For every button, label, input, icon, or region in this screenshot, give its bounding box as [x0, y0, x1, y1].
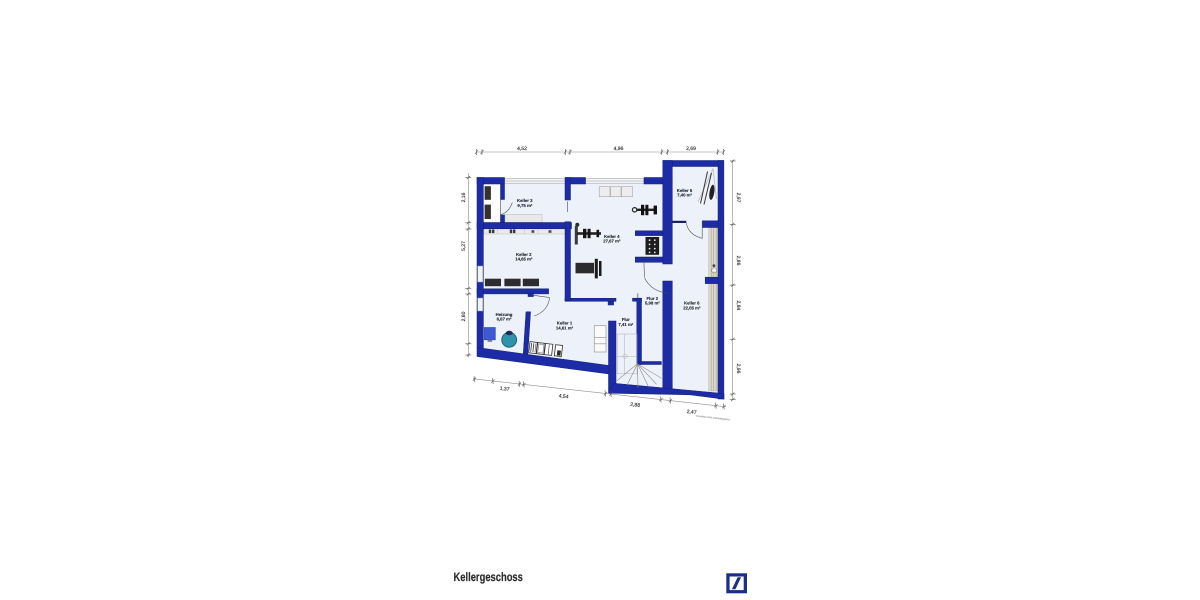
svg-text:1,37: 1,37 — [499, 386, 510, 393]
svg-text:2,97: 2,97 — [735, 193, 741, 203]
svg-text:9,75 m²: 9,75 m² — [517, 203, 532, 208]
svg-text:Kellergeschoss: Kellergeschoss — [454, 570, 524, 584]
svg-text:2,96: 2,96 — [735, 364, 741, 374]
svg-text:14,65 m²: 14,65 m² — [515, 257, 533, 262]
svg-text:7,41 m²: 7,41 m² — [618, 322, 633, 327]
svg-text:4,96: 4,96 — [614, 146, 624, 152]
svg-text:2,69: 2,69 — [686, 146, 696, 152]
svg-text:27,67 m²: 27,67 m² — [603, 239, 621, 244]
svg-text:14,61 m²: 14,61 m² — [556, 325, 574, 330]
svg-text:22,05 m²: 22,05 m² — [683, 305, 701, 310]
svg-text:2,86: 2,86 — [735, 256, 741, 266]
svg-text:2,88: 2,88 — [630, 402, 641, 409]
svg-text:4,54: 4,54 — [558, 393, 569, 400]
svg-text:2,84: 2,84 — [735, 301, 741, 311]
svg-text:2,60: 2,60 — [461, 311, 467, 321]
svg-text:5,98 m²: 5,98 m² — [645, 301, 660, 306]
svg-text:5,27: 5,27 — [461, 241, 467, 251]
svg-text:6,87 m²: 6,87 m² — [497, 316, 512, 321]
svg-text:7,40 m²: 7,40 m² — [677, 193, 692, 198]
svg-text:2,16: 2,16 — [461, 192, 467, 202]
svg-text:4,52: 4,52 — [517, 146, 527, 152]
